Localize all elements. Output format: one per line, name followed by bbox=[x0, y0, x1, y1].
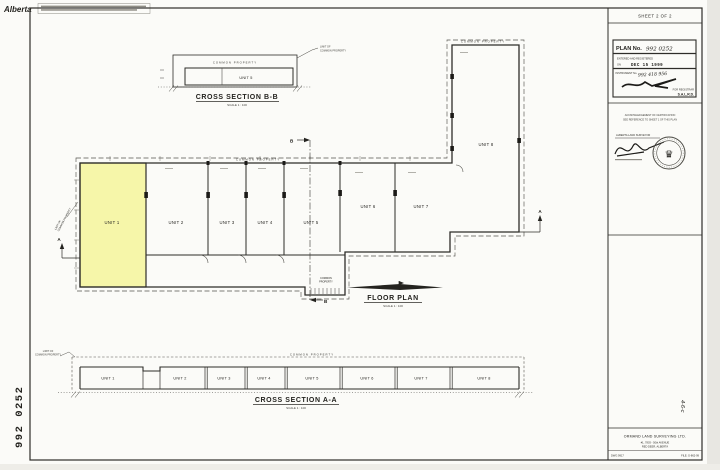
firm-block: ORMAND LAND SURVEYING LTD. #1, 7803 - 50… bbox=[608, 435, 702, 458]
bb-limit-line2: COMMON PROPERTY bbox=[320, 50, 346, 53]
north-arrow bbox=[347, 281, 443, 290]
unit-4-label: UNIT 4 bbox=[258, 220, 273, 225]
aa-title: CROSS SECTION A-A bbox=[255, 397, 337, 404]
firm-address-2: RED DEER, ALBERTA bbox=[642, 445, 669, 449]
bb-unit-label: UNIT 5 bbox=[239, 76, 252, 80]
bb-scale: SCALE 1 : 100 bbox=[227, 103, 247, 107]
unit1-highlight bbox=[80, 163, 146, 287]
dimension-text-marks bbox=[165, 52, 468, 173]
surveyor-name-fineprint bbox=[615, 159, 642, 160]
fineprint-line-2 bbox=[41, 9, 137, 11]
acknowledgment-block: ACKNOWLEDGEMENT OF CERTIFICATION SEE REF… bbox=[615, 114, 685, 169]
registrar-line: FOR REGISTRAR bbox=[673, 88, 694, 92]
bb-limit-line1: LIMIT OF bbox=[320, 46, 331, 49]
firm-dwg-number: DWG 9917 bbox=[611, 454, 624, 458]
seal-crown-icon: ♛ bbox=[665, 150, 674, 161]
firm-name: ORMAND LAND SURVEYING LTD. bbox=[624, 435, 686, 439]
aa-party-walls bbox=[143, 367, 452, 389]
aa-unit-5: UNIT 5 bbox=[305, 377, 318, 381]
aa-band-top bbox=[80, 367, 519, 371]
floor-plan-scale: SCALE 1 : 100 bbox=[383, 304, 403, 308]
common-property-wing-label: COMMON PROPERTY bbox=[461, 40, 505, 44]
acknowledgment-line1: ACKNOWLEDGEMENT OF CERTIFICATION bbox=[625, 114, 676, 117]
surveyor-label: ALBERTA LAND SURVEYOR bbox=[616, 133, 650, 137]
unit-3-label: UNIT 3 bbox=[220, 220, 235, 225]
surveyor-seal: ♛ bbox=[653, 137, 685, 169]
section-b-marker-bottom: B bbox=[324, 299, 328, 304]
registrar-signature bbox=[622, 79, 676, 88]
common-property-bottom-line2: PROPERTY bbox=[319, 281, 333, 284]
unit-7-label: UNIT 7 bbox=[414, 204, 429, 209]
cross-section-aa: LIMIT OF COMMON PROPERTY COMMON PROPERTY bbox=[35, 350, 534, 410]
plan-no-label: PLAN No. bbox=[616, 46, 642, 52]
aa-unit-8: UNIT 8 bbox=[477, 377, 490, 381]
interior-walls bbox=[146, 163, 395, 287]
aa-unit-7: UNIT 7 bbox=[414, 377, 427, 381]
unit-8-label: UNIT 8 bbox=[479, 142, 494, 147]
entered-registered: ENTERED AND REGISTERED bbox=[617, 57, 653, 61]
limit-left-line2: COMMON PROPERTY bbox=[57, 207, 72, 232]
acknowledgment-line2: SEE REFERENCE TO SHEET 1 OF THIS PLAN bbox=[623, 119, 677, 122]
aa-limit-line2: COMMON PROPERTY bbox=[35, 354, 61, 357]
sheet-number-label: SHEET 2 OF 2 bbox=[638, 14, 672, 19]
unit-6-label: UNIT 6 bbox=[361, 204, 376, 209]
aa-unit-1: UNIT 1 bbox=[101, 377, 114, 381]
aa-envelope bbox=[72, 357, 524, 391]
aa-unit-6: UNIT 6 bbox=[360, 377, 373, 381]
firm-file-number: FILE: G-862-99 bbox=[681, 454, 699, 458]
aa-unit-3: UNIT 3 bbox=[217, 377, 230, 381]
fineprint-line-1 bbox=[41, 6, 146, 8]
sheet-number: SHEET 2 OF 2 bbox=[638, 14, 672, 19]
plan-number-stamp: 992 0252 bbox=[14, 386, 26, 448]
bb-common-property-label: COMMON PROPERTY bbox=[213, 61, 257, 65]
unit-5-label: UNIT 5 bbox=[304, 220, 319, 225]
registration-date: DEC 15 1999 bbox=[631, 64, 663, 68]
floor-plan: COMMON PROPERTY COMMON PROPERTY COMMON P… bbox=[54, 40, 542, 309]
district-line: S.A.L.R.D. bbox=[678, 93, 694, 97]
plan-no-value: 992 0252 bbox=[646, 47, 673, 53]
header-stamp: Alberta bbox=[3, 4, 150, 15]
section-a-marker-right: A bbox=[538, 209, 542, 214]
instrument-value: 992 418 956 bbox=[638, 71, 668, 79]
registration-stamp: PLAN No. 992 0252 ENTERED AND REGISTERED… bbox=[613, 40, 696, 97]
aa-unit-2: UNIT 2 bbox=[173, 377, 186, 381]
aa-unit-4: UNIT 4 bbox=[257, 377, 270, 381]
alberta-wordmark: Alberta bbox=[3, 5, 32, 14]
margin-note: 4-6-c bbox=[679, 400, 685, 413]
bb-title: CROSS SECTION B-B bbox=[196, 94, 279, 101]
section-a-marker-left: A bbox=[57, 237, 61, 242]
bb-limit-leader: LIMIT OF COMMON PROPERTY bbox=[297, 46, 346, 59]
wall-monument-marks bbox=[144, 74, 521, 198]
door-swings bbox=[200, 165, 463, 263]
floor-plan-title: FLOOR PLAN bbox=[367, 295, 419, 302]
date-prefix: ON bbox=[617, 63, 621, 67]
section-line-a-right: A bbox=[519, 209, 542, 232]
aa-common-property-label: COMMON PROPERTY bbox=[290, 353, 334, 357]
instrument-label: INSTRUMENT No. bbox=[616, 71, 638, 75]
common-property-top-label: COMMON PROPERTY bbox=[236, 158, 280, 162]
aa-limit-leader: LIMIT OF COMMON PROPERTY bbox=[35, 350, 75, 357]
unit-2-label: UNIT 2 bbox=[169, 220, 184, 225]
bb-ground-symbols bbox=[160, 70, 302, 92]
section-b-marker-top: B bbox=[290, 139, 294, 144]
firm-address-1: #1, 7803 - 50th AVENUE bbox=[641, 441, 670, 445]
stair-hatch bbox=[311, 288, 339, 294]
unit-1-label: UNIT 1 bbox=[105, 220, 120, 225]
limit-label-left: LIMIT OF COMMON PROPERTY bbox=[54, 202, 78, 232]
plan-sheet: Alberta SHEET 2 OF 2 PLAN No. 992 0252 E… bbox=[0, 0, 720, 470]
cross-section-bb: COMMON PROPERTY UNIT 5 LIMIT OF COMMON P… bbox=[158, 46, 346, 108]
aa-scale: SCALE 1 : 100 bbox=[286, 406, 306, 410]
